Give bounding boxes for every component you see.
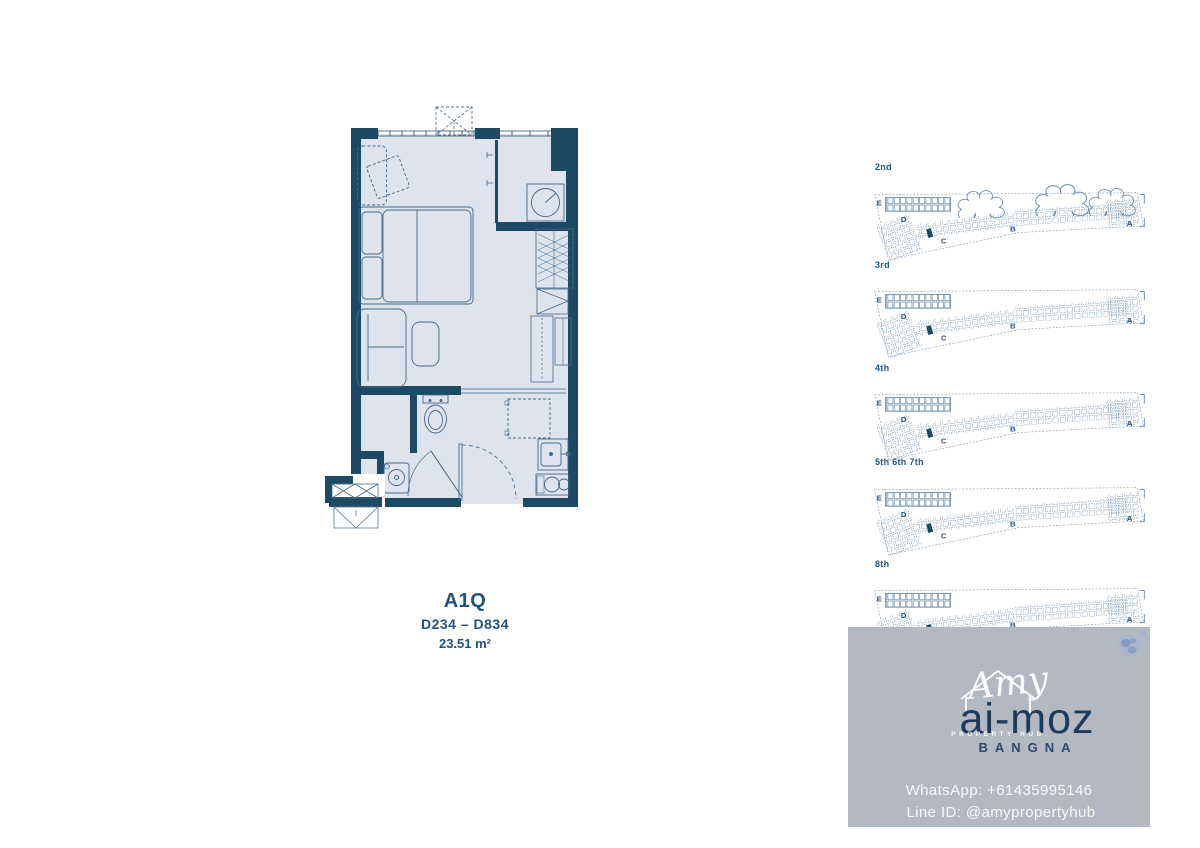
floor-label-5th-6th-7th: 5th 6th 7th — [875, 457, 924, 467]
floor-label-3rd: 3rd — [875, 260, 890, 270]
unit-name: A1Q — [365, 590, 565, 613]
site-plan-3rd — [862, 272, 1154, 358]
line-id-contact: Line ID: @amypropertyhub — [906, 804, 1095, 821]
unit-label: A1Q D234 – D834 23.51 m² — [365, 590, 565, 651]
ac-ledge — [325, 474, 385, 528]
garden-clouds — [955, 182, 1155, 227]
floor-label-4th: 4th — [875, 363, 889, 373]
compass-n-label: N — [1140, 631, 1145, 638]
site-plan-4th — [862, 375, 1154, 461]
page: { "unit": { "name": "A1Q", "range": "D23… — [0, 0, 1200, 848]
watermark-panel: N Amy ai-moz PROPERTY HUB BANGNA WhatsAp… — [848, 627, 1150, 827]
ac-unit-bottom — [334, 507, 378, 528]
whatsapp-contact: WhatsApp: +61435995146 — [906, 782, 1093, 799]
brand-tagline: PROPERTY HUB — [951, 731, 1045, 738]
balcony-slider-wall — [495, 140, 498, 223]
floor-plan — [325, 85, 580, 533]
unit-area: 23.51 m² — [365, 636, 565, 651]
floor-label-2nd: 2nd — [875, 162, 892, 172]
unit-range: D234 – D834 — [365, 616, 565, 632]
brand-location: BANGNA — [978, 740, 1077, 755]
floor-label-8th: 8th — [875, 559, 889, 569]
site-plan-5th-6th-7th — [862, 470, 1154, 556]
